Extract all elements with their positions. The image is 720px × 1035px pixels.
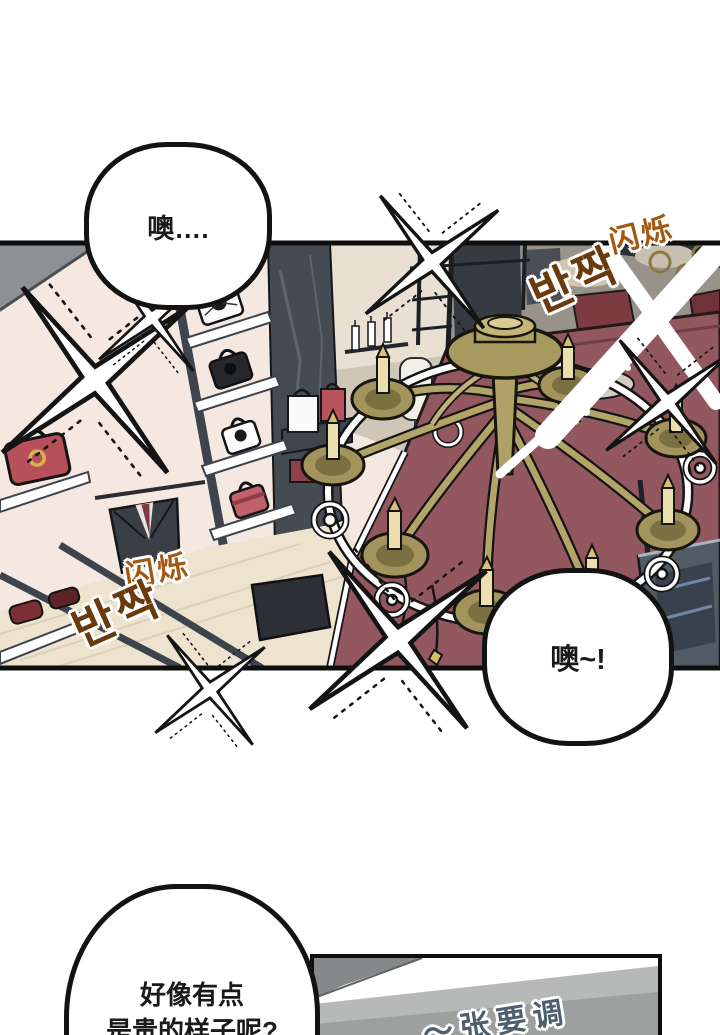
- bottom-panel: ～张要调: [310, 954, 662, 1035]
- bench: [252, 575, 330, 640]
- speech-bubble-3-line1: 好像有点: [106, 977, 278, 1013]
- comic-page: 闪烁 반짝 闪烁 반짝 噢…. 噢~! 好像有点 是贵的样子呢? ～张要调: [0, 0, 720, 1035]
- speech-bubble-2-text: 噢~!: [550, 636, 606, 678]
- speech-bubble-2: 噢~!: [482, 568, 674, 746]
- speech-bubble-1: 噢….: [84, 142, 272, 310]
- speech-bubble-3-line2: 是贵的样子呢?: [106, 1013, 278, 1035]
- store-scene-illustration: [0, 0, 720, 1035]
- speech-bubble-1-text: 噢….: [147, 207, 209, 246]
- white-tote-bag: [288, 396, 318, 432]
